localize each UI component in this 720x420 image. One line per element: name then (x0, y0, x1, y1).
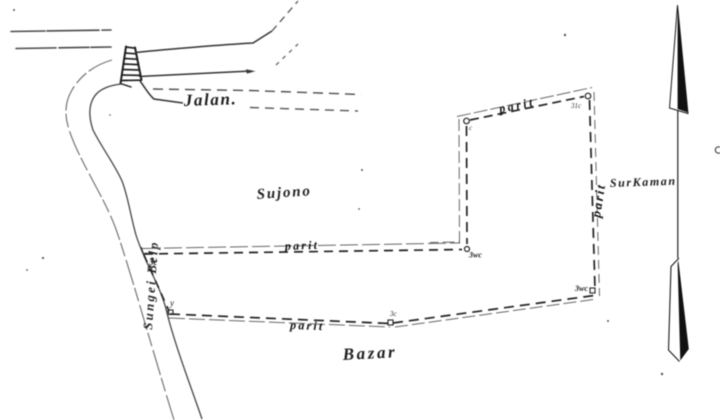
svg-text:Bazar: Bazar (341, 342, 397, 364)
svg-text:3wc: 3wc (468, 251, 482, 260)
svg-text:3c: 3c (389, 310, 398, 318)
svg-text:Jalan.: Jalan. (182, 89, 237, 110)
svg-text:31c: 31c (570, 102, 582, 110)
svg-text:3wc: 3wc (574, 284, 588, 293)
svg-text:3c: 3c (148, 257, 158, 267)
svg-text:parit: parit (289, 318, 325, 333)
svg-text:SurKaman: SurKaman (610, 174, 677, 190)
svg-text:parit: parit (284, 238, 320, 253)
